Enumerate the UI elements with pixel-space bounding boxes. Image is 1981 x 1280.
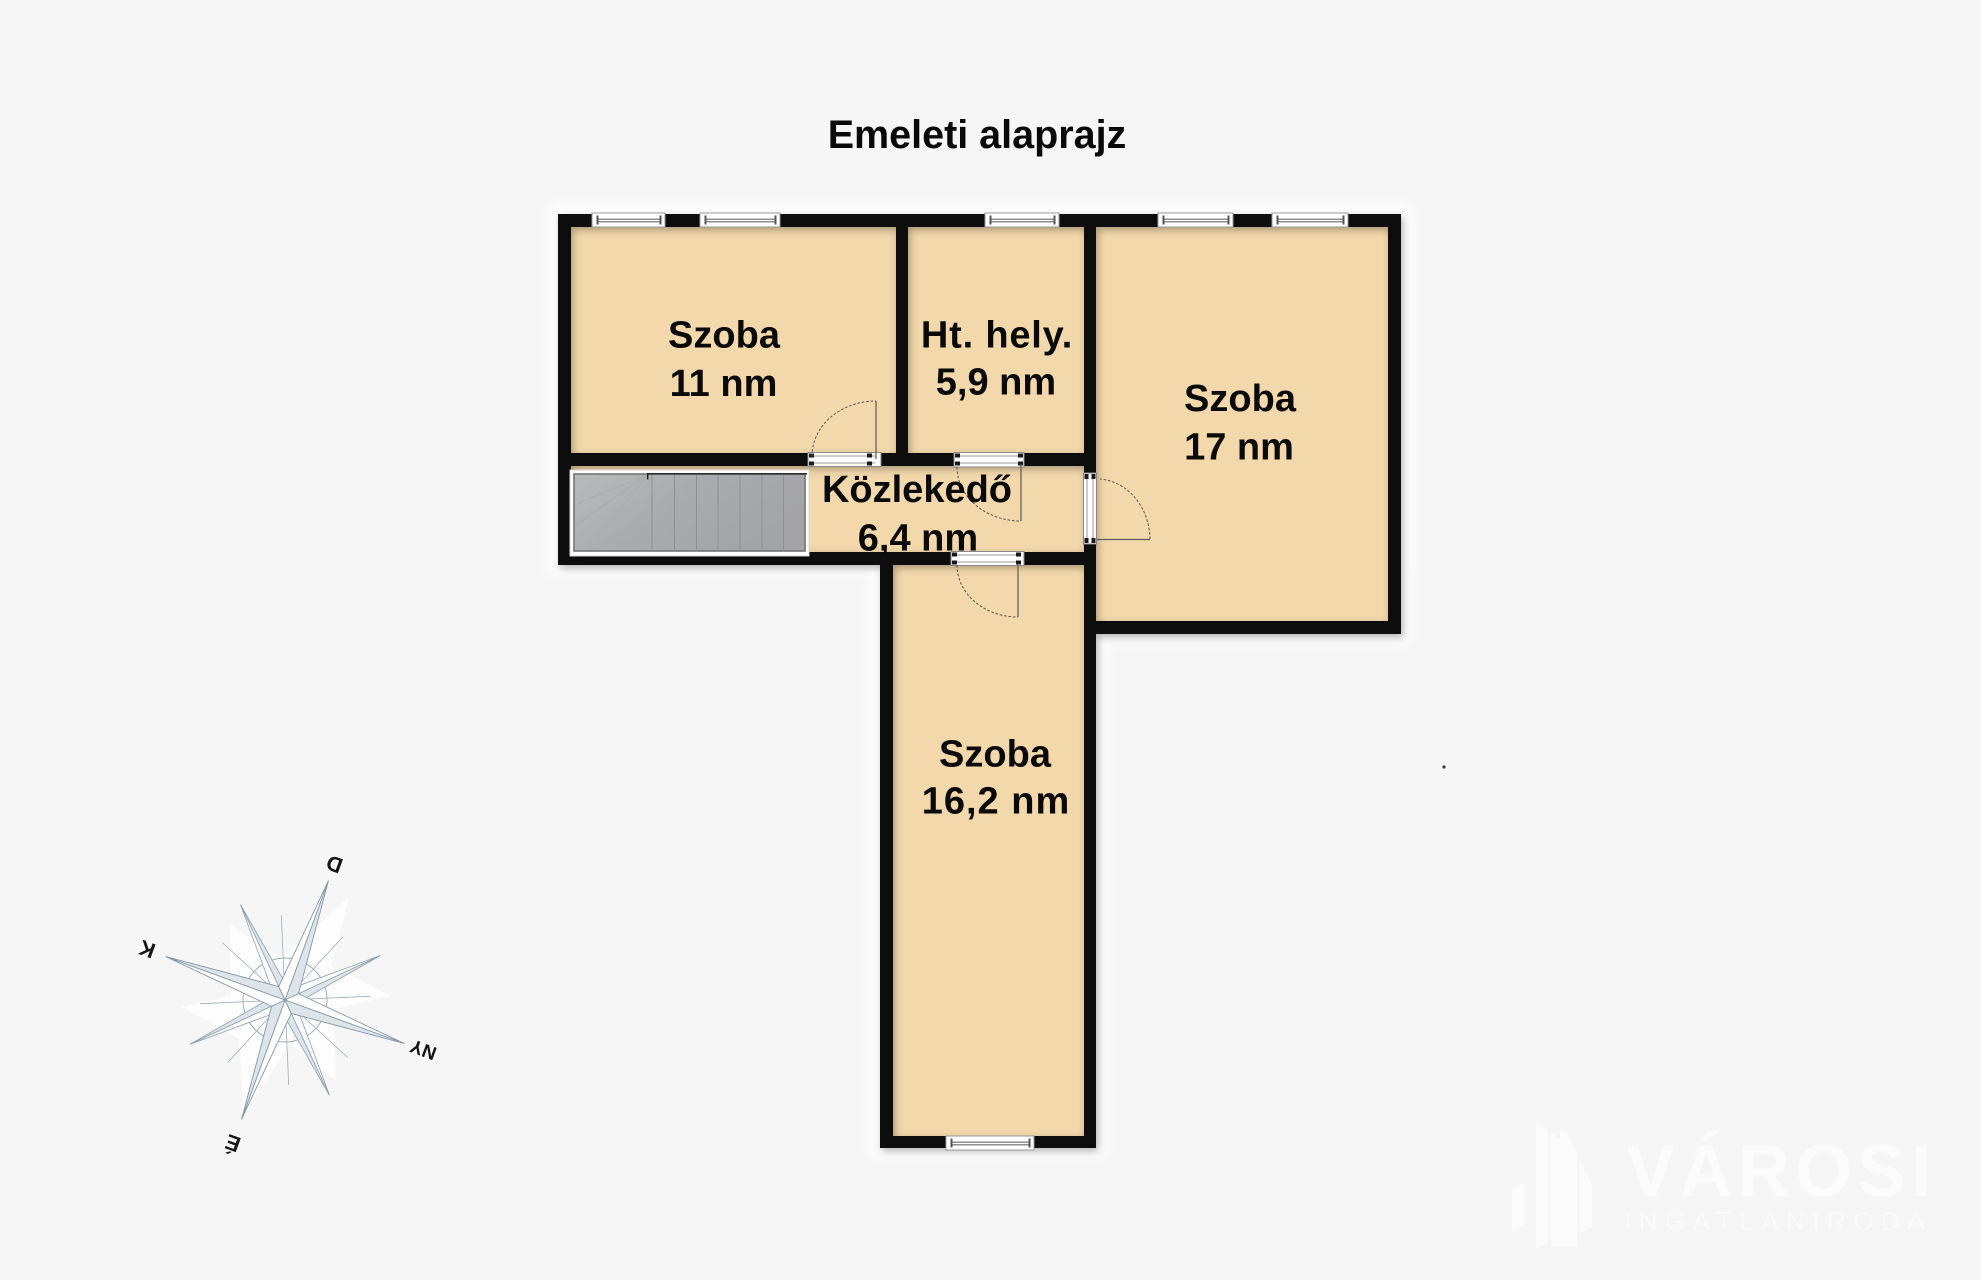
svg-text:Ht. hely.: Ht. hely. <box>921 315 1073 357</box>
svg-text:D: D <box>323 850 346 878</box>
svg-text:É: É <box>222 1129 244 1157</box>
svg-text:Szoba: Szoba <box>668 315 781 357</box>
svg-text:11 nm: 11 nm <box>670 363 778 405</box>
svg-text:5,9 nm: 5,9 nm <box>936 362 1056 404</box>
svg-text:Közlekedő: Közlekedő <box>822 469 1012 511</box>
svg-text:16,2 nm: 16,2 nm <box>922 781 1071 823</box>
svg-text:NY: NY <box>407 1034 439 1063</box>
svg-text:6,4 nm: 6,4 nm <box>858 518 978 560</box>
svg-text:17 nm: 17 nm <box>1184 427 1294 469</box>
svg-text:INGATLANIRODA: INGATLANIRODA <box>1624 1206 1932 1236</box>
svg-text:Emeleti alaprajz: Emeleti alaprajz <box>828 113 1127 157</box>
svg-text:Szoba: Szoba <box>939 734 1052 776</box>
svg-text:Szoba: Szoba <box>1184 378 1297 420</box>
svg-text:VÁROSI: VÁROSI <box>1626 1131 1936 1212</box>
svg-text:K: K <box>135 935 158 963</box>
